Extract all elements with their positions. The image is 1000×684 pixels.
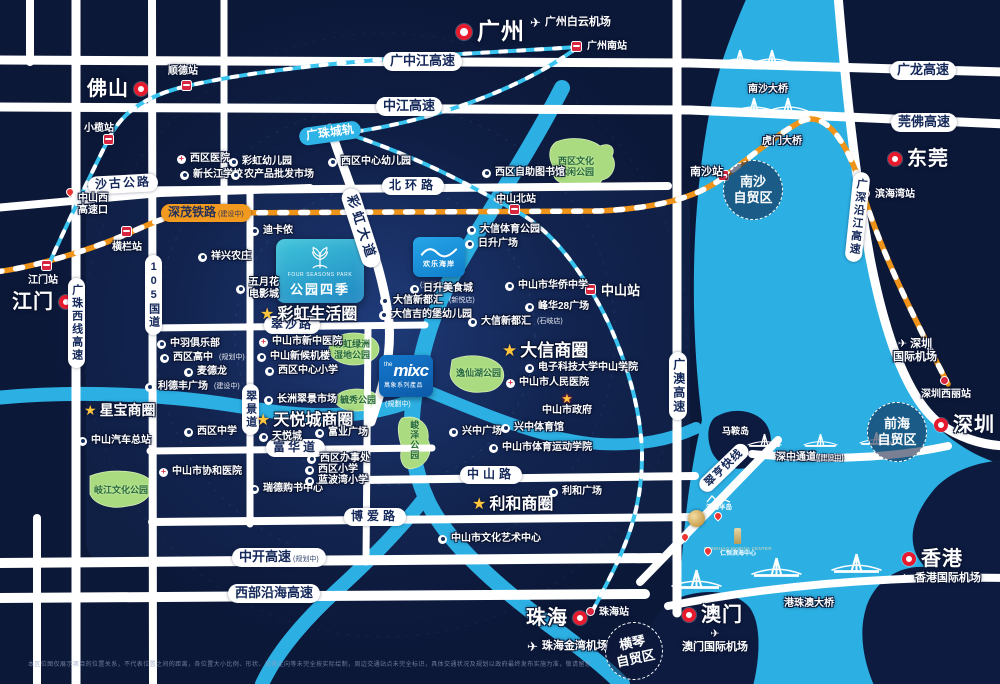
map-stage: FOUR SEASONS PARK 公园四季 欢乐海岸 (规划中) themix…	[0, 0, 1000, 684]
macau-land	[638, 592, 759, 684]
map-geometry	[0, 0, 1000, 684]
